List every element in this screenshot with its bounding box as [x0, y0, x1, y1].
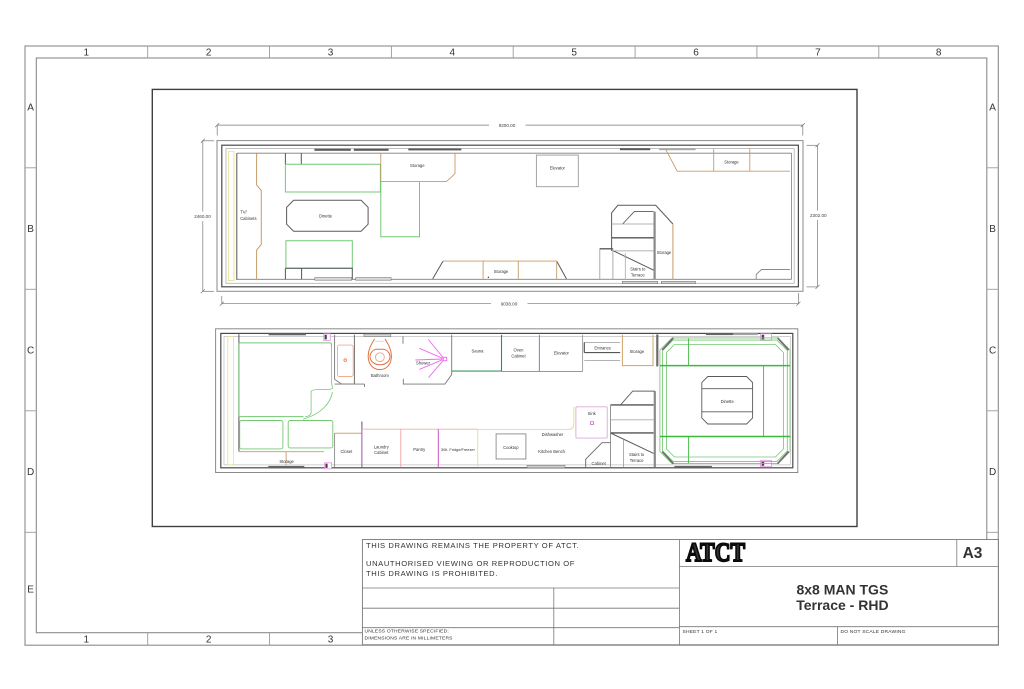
- svg-text:Dinette: Dinette: [721, 399, 735, 404]
- svg-text:9038.00: 9038.00: [501, 302, 518, 307]
- svg-text:Cabinet: Cabinet: [511, 353, 526, 358]
- svg-text:2302.00: 2302.00: [810, 213, 827, 218]
- svg-text:Storage: Storage: [279, 459, 294, 464]
- svg-text:A: A: [27, 103, 34, 114]
- svg-text:Cabinets: Cabinets: [240, 216, 256, 221]
- svg-text:D: D: [27, 467, 34, 478]
- svg-text:Entrance: Entrance: [594, 346, 611, 351]
- svg-text:3: 3: [328, 635, 334, 646]
- svg-text:2: 2: [206, 48, 212, 59]
- svg-text:C: C: [989, 346, 996, 357]
- svg-text:7: 7: [815, 48, 821, 59]
- svg-text:6: 6: [693, 48, 699, 59]
- svg-text:THIS DRAWING REMAINS THE PROPE: THIS DRAWING REMAINS THE PROPERTY OF ATC…: [366, 541, 579, 550]
- svg-text:9200.00: 9200.00: [499, 123, 516, 128]
- svg-text:Storage: Storage: [724, 159, 739, 164]
- svg-text:Cooktop: Cooktop: [503, 445, 519, 450]
- svg-text:1: 1: [84, 48, 90, 59]
- svg-text:Cabinet: Cabinet: [592, 461, 607, 466]
- svg-text:D: D: [989, 467, 996, 478]
- svg-text:Sauna: Sauna: [472, 348, 485, 353]
- svg-text:Oven: Oven: [514, 348, 525, 353]
- svg-text:Sink: Sink: [588, 411, 597, 416]
- svg-text:Storage: Storage: [410, 163, 425, 168]
- svg-text:Closet: Closet: [341, 449, 354, 454]
- svg-text:UNLESS OTHERWISE SPECIFIED:: UNLESS OTHERWISE SPECIFIED:: [365, 628, 449, 634]
- svg-text:DO NOT SCALE DRAWING: DO NOT SCALE DRAWING: [841, 629, 906, 635]
- svg-text:C: C: [27, 346, 34, 357]
- svg-text:A: A: [989, 103, 996, 114]
- svg-text:Stairs to: Stairs to: [629, 452, 645, 457]
- svg-text:A3: A3: [963, 545, 983, 562]
- svg-text:1: 1: [84, 635, 90, 646]
- svg-text:Elevator: Elevator: [554, 350, 570, 355]
- svg-text:Terrace - RHD: Terrace - RHD: [796, 597, 888, 613]
- svg-text:Storage: Storage: [494, 269, 509, 274]
- svg-text:DIMENSIONS ARE IN MILLIMETERS: DIMENSIONS ARE IN MILLIMETERS: [365, 635, 454, 641]
- svg-text:2460.00: 2460.00: [194, 214, 211, 219]
- svg-text:Terrace: Terrace: [631, 272, 646, 277]
- svg-text:8: 8: [936, 48, 942, 59]
- svg-text:30lt. Fridge/Freezer: 30lt. Fridge/Freezer: [441, 447, 476, 452]
- svg-text:THIS DRAWING IS PROHIBITED.: THIS DRAWING IS PROHIBITED.: [366, 569, 498, 578]
- svg-text:SHEET 1 OF 1: SHEET 1 OF 1: [683, 629, 718, 635]
- svg-text:Elevator: Elevator: [550, 165, 566, 170]
- svg-text:TV/: TV/: [240, 210, 247, 215]
- svg-text:B: B: [27, 224, 34, 235]
- svg-text:2: 2: [206, 635, 212, 646]
- svg-text:ATCT: ATCT: [686, 538, 745, 567]
- svg-text:5: 5: [571, 48, 577, 59]
- svg-text:Storage: Storage: [657, 250, 672, 255]
- svg-text:8x8 MAN TGS: 8x8 MAN TGS: [796, 581, 888, 597]
- svg-text:4: 4: [450, 48, 456, 59]
- svg-text:3: 3: [328, 48, 334, 59]
- svg-text:Dishwasher: Dishwasher: [542, 432, 564, 437]
- svg-text:Storage: Storage: [630, 349, 645, 354]
- svg-text:Laundry: Laundry: [374, 444, 390, 449]
- svg-text:Shower: Shower: [416, 360, 431, 365]
- svg-text:UNAUTHORISED VIEWING OR REPROD: UNAUTHORISED VIEWING OR REPRODUCTION OF: [366, 559, 575, 568]
- svg-text:Pantry: Pantry: [413, 447, 426, 452]
- svg-text:Bathroom: Bathroom: [371, 373, 390, 378]
- svg-text:B: B: [989, 224, 996, 235]
- svg-text:Dinette: Dinette: [319, 214, 333, 219]
- svg-text:E: E: [27, 584, 34, 595]
- svg-text:Kitchen Bench: Kitchen Bench: [538, 449, 565, 454]
- svg-text:Terrace: Terrace: [630, 458, 645, 463]
- svg-text:Stairs to: Stairs to: [630, 267, 646, 272]
- svg-text:Cabinet: Cabinet: [374, 450, 389, 455]
